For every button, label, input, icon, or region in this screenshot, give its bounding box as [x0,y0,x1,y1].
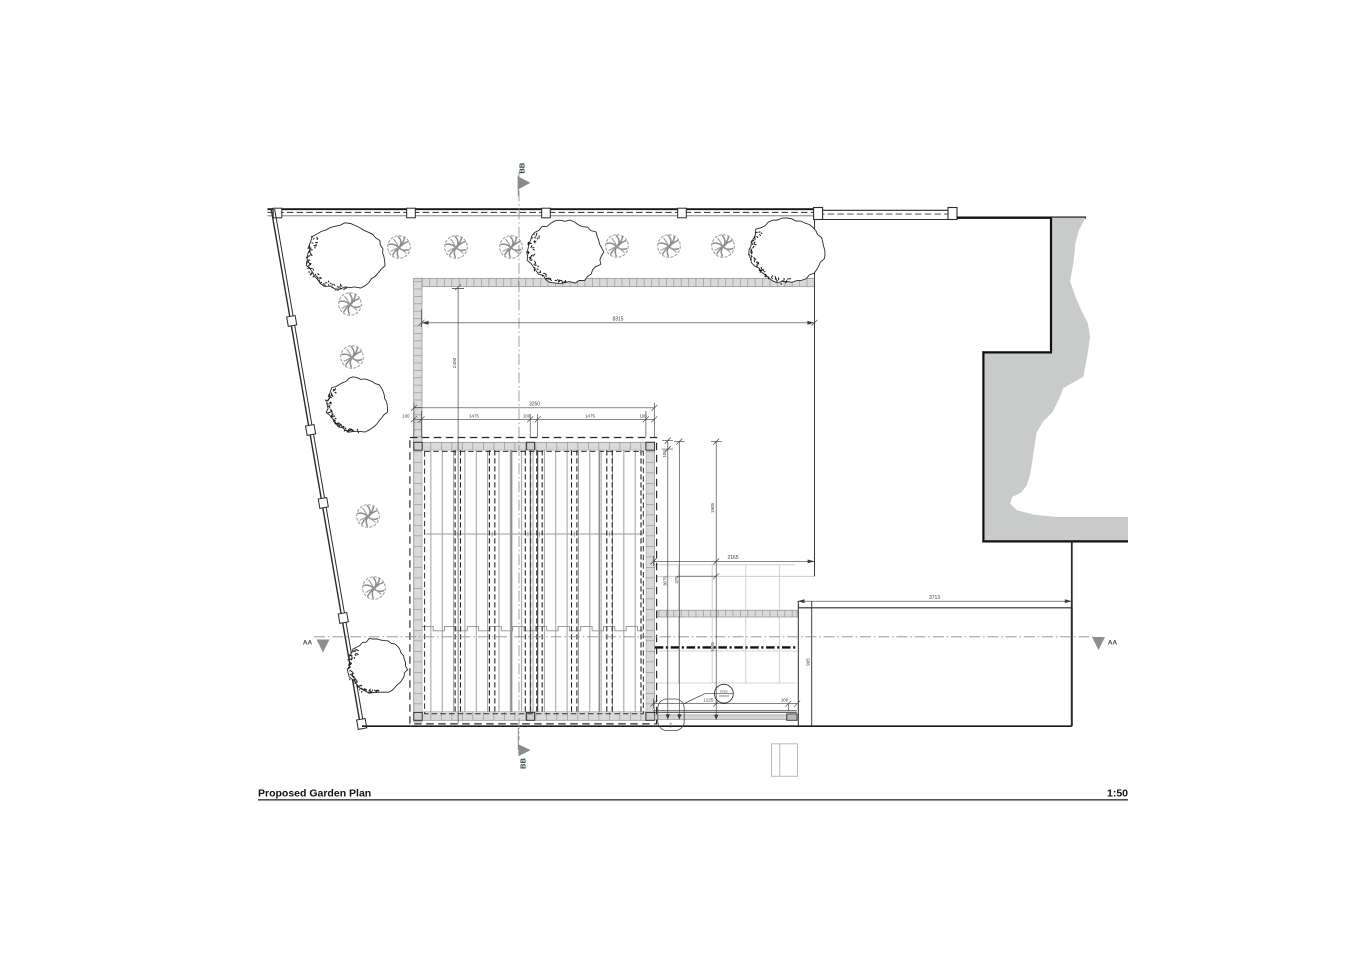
svg-text:100: 100 [781,698,789,703]
svg-text:1905: 1905 [710,502,715,513]
svg-text:1475: 1475 [469,414,480,419]
svg-text:2165: 2165 [727,555,738,561]
svg-text:3250: 3250 [529,401,540,407]
svg-text:2400: 2400 [452,357,458,368]
svg-text:BB: BB [518,162,527,173]
svg-text:3713: 3713 [929,595,940,601]
svg-text:100: 100 [523,414,531,419]
svg-text:8315: 8315 [612,317,623,323]
svg-text:1:50: 1:50 [1107,788,1128,800]
svg-text:moved: moved [719,694,729,698]
svg-text:100: 100 [662,450,667,458]
svg-text:375: 375 [674,576,679,584]
svg-text:1525: 1525 [710,642,715,652]
svg-text:Proposed Garden Plan: Proposed Garden Plan [258,788,371,800]
svg-text:BB: BB [519,758,528,769]
svg-text:1225: 1225 [703,698,714,703]
svg-text:100: 100 [639,414,647,419]
svg-text:3075: 3075 [663,576,668,586]
svg-text:100: 100 [402,414,410,419]
svg-text:AA: AA [1108,639,1118,646]
svg-text:1475: 1475 [585,414,596,419]
svg-text:Drain: Drain [720,690,728,694]
svg-text:AA: AA [303,640,313,647]
svg-text:905: 905 [806,658,811,666]
